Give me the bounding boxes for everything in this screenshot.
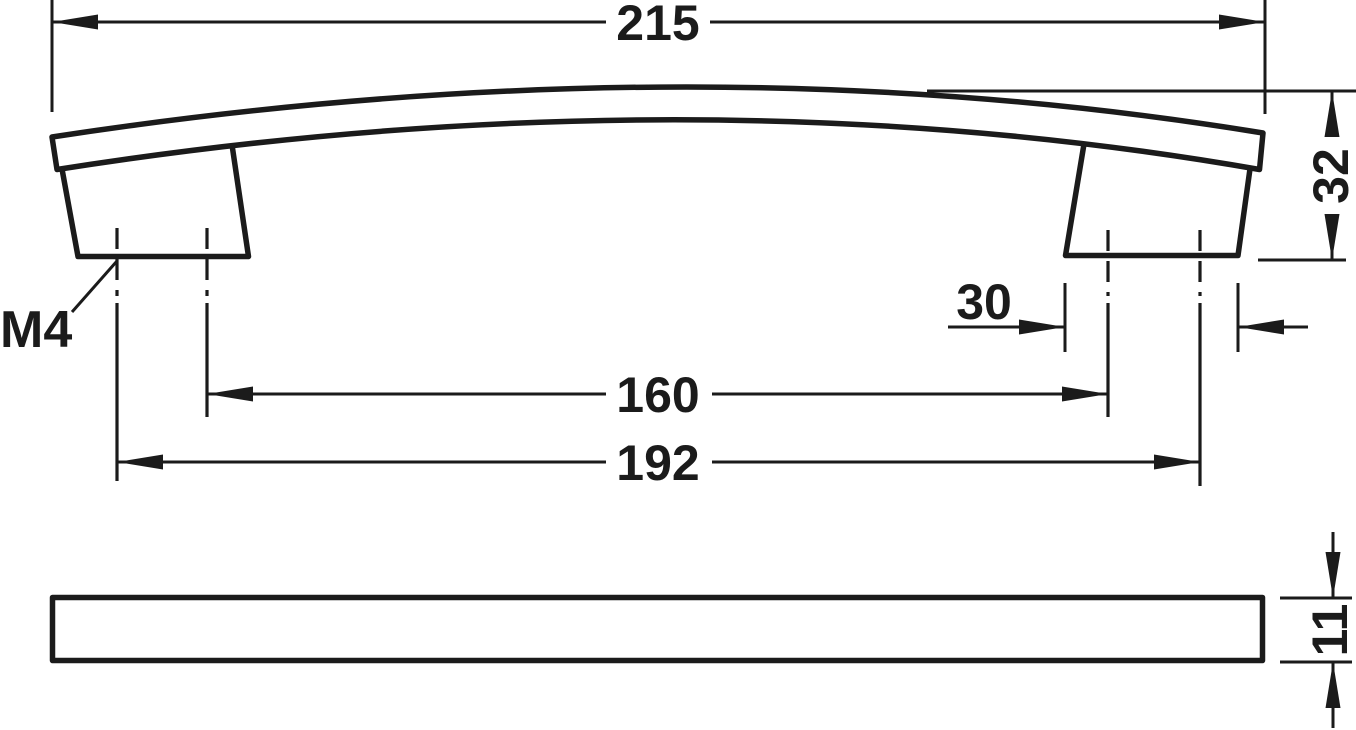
side-elevation-view: [52, 87, 1263, 257]
arrowhead-left: [1238, 320, 1284, 335]
dimension-hole-spacing-inner: 160: [207, 367, 1108, 423]
dimension-profile-thickness: 11: [1280, 532, 1356, 728]
thread-label-m4: M4: [0, 301, 72, 359]
arrowhead-left: [207, 387, 253, 402]
dimension-value-30: 30: [956, 274, 1012, 330]
leader-line: [72, 261, 117, 312]
dimension-foot-width: 30: [948, 274, 1308, 352]
arrowhead-right: [1219, 15, 1265, 30]
bottom-profile-view: [53, 598, 1263, 661]
arrowhead-down: [1326, 552, 1341, 598]
arrowhead-up: [1325, 91, 1340, 137]
arrowhead-left: [117, 455, 163, 470]
arrowhead-right: [1019, 320, 1065, 335]
handle-profile-bar: [53, 598, 1263, 661]
arrowhead-right: [1154, 455, 1200, 470]
dimension-value-215: 215: [616, 0, 699, 51]
arrowhead-down: [1325, 214, 1340, 260]
handle-dimension-drawing: 215 32 30 160: [0, 0, 1356, 730]
technical-drawing-canvas: 215 32 30 160: [0, 0, 1356, 730]
dimension-value-32: 32: [1303, 148, 1356, 204]
dimension-value-192: 192: [616, 435, 699, 491]
dimension-value-160: 160: [616, 367, 699, 423]
arrowhead-left: [52, 15, 98, 30]
arrowhead-up: [1326, 662, 1341, 708]
dimension-value-11: 11: [1302, 604, 1356, 657]
thread-callout: M4: [0, 261, 117, 359]
arrowhead-right: [1062, 387, 1108, 402]
dimension-hole-spacing-outer: 192: [117, 435, 1200, 491]
